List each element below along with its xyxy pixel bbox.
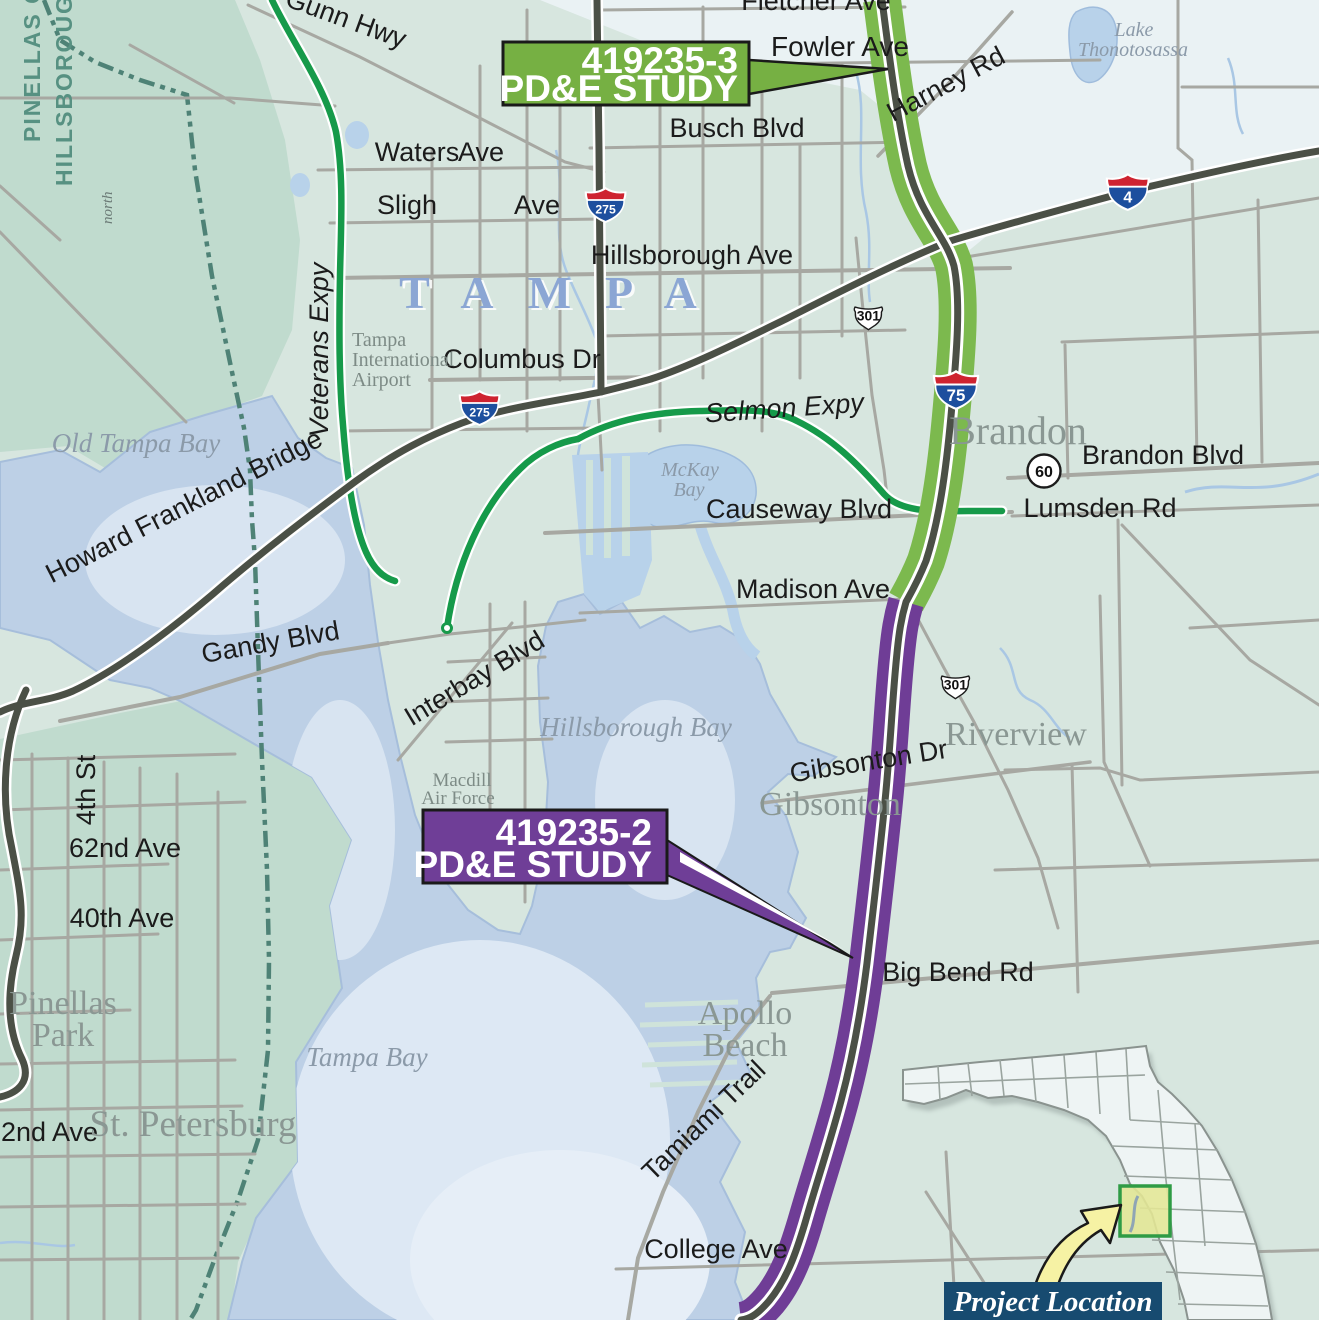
label-hillsborough-ave: Hillsborough Ave <box>591 240 793 270</box>
label-sligh: Sligh <box>377 190 437 220</box>
label-causeway-blvd: Causeway Blvd <box>706 494 892 524</box>
label-4th-st: 4th St <box>71 754 101 825</box>
label-waters: Waters <box>375 137 460 167</box>
label-lake-thonotosassa-2: Thonotosassa <box>1078 39 1188 61</box>
label-busch-blvd: Busch Blvd <box>669 113 804 143</box>
label-pinellas-county: PINELLAS COUNTY <box>19 0 45 142</box>
label-airport-3: Airport <box>352 369 411 391</box>
label-columbus-dr: Columbus Dr <box>443 344 601 374</box>
label-madison-ave: Madison Ave <box>736 574 890 604</box>
label-fowler-ave: Fowler Ave <box>771 31 909 62</box>
label-brandon: Brandon <box>949 408 1087 453</box>
us301-shield-south-number: 301 <box>944 676 967 692</box>
label-old-tampa-bay: Old Tampa Bay <box>52 428 221 458</box>
i275-shield-south-number: 275 <box>469 406 490 420</box>
label-brandon-blvd: Brandon Blvd <box>1082 440 1244 470</box>
label-gibsonton: Gibsonton <box>759 786 901 823</box>
i275-shield-north-number: 275 <box>595 203 616 217</box>
us301-shield-north-number: 301 <box>857 307 880 323</box>
land-pinellas-north <box>0 0 300 468</box>
label-st-petersburg: St. Petersburg <box>90 1104 297 1145</box>
label-big-bend-rd: Big Bend Rd <box>882 957 1034 987</box>
label-macdill-2: Air Force <box>421 788 494 809</box>
label-fletcher-ave: Fletcher Ave <box>741 0 891 16</box>
label-waters-ave: Ave <box>458 137 504 167</box>
callout-419235-2-study: PD&E STUDY <box>414 844 653 885</box>
label-pinellas-park-2: Park <box>32 1017 94 1054</box>
i4-shield-number: 4 <box>1123 190 1132 207</box>
label-lumsden-rd: Lumsden Rd <box>1023 493 1176 523</box>
label-apollo-beach-2: Beach <box>703 1027 788 1064</box>
label-mckay-bay-2: Bay <box>673 479 704 501</box>
label-hillsborough-bay: Hillsborough Bay <box>539 712 732 742</box>
label-62nd-ave: 62nd Ave <box>69 833 181 863</box>
label-sligh-ave: Ave <box>514 190 560 220</box>
callout-419235-3-study: PD&E STUDY <box>500 68 739 109</box>
map-canvas: 275 275 75 4 301 301 60 Fletcher Ave Fow… <box>0 0 1319 1320</box>
label-22nd-ave: 22nd Ave <box>0 1117 98 1147</box>
project-location-map-page: 275 275 75 4 301 301 60 Fletcher Ave Fow… <box>0 0 1319 1320</box>
label-40th-ave: 40th Ave <box>70 903 175 933</box>
label-lake-thonotosassa-1: Lake <box>1114 19 1154 41</box>
label-tampa: TAMPA <box>399 267 731 318</box>
label-college-ave: College Ave <box>644 1234 788 1264</box>
sr60-shield: 60 <box>1028 455 1061 488</box>
inset-highlight-box <box>1120 1186 1170 1236</box>
label-airport-2: International <box>352 349 455 371</box>
project-location-label: Project Location <box>953 1286 1153 1318</box>
label-mckay-bay-1: McKay <box>660 459 719 481</box>
label-hillsborough-county: HILLSBOROUGH COUNTY <box>51 0 77 186</box>
sr60-shield-number: 60 <box>1035 464 1053 481</box>
label-veterans-expy: Veterans Expy <box>304 261 334 437</box>
label-north: north <box>100 191 116 224</box>
label-riverview: Riverview <box>945 716 1087 753</box>
label-airport-1: Tampa <box>352 329 406 351</box>
label-tampa-bay: Tampa Bay <box>306 1042 427 1072</box>
i75-shield-number: 75 <box>947 386 966 405</box>
